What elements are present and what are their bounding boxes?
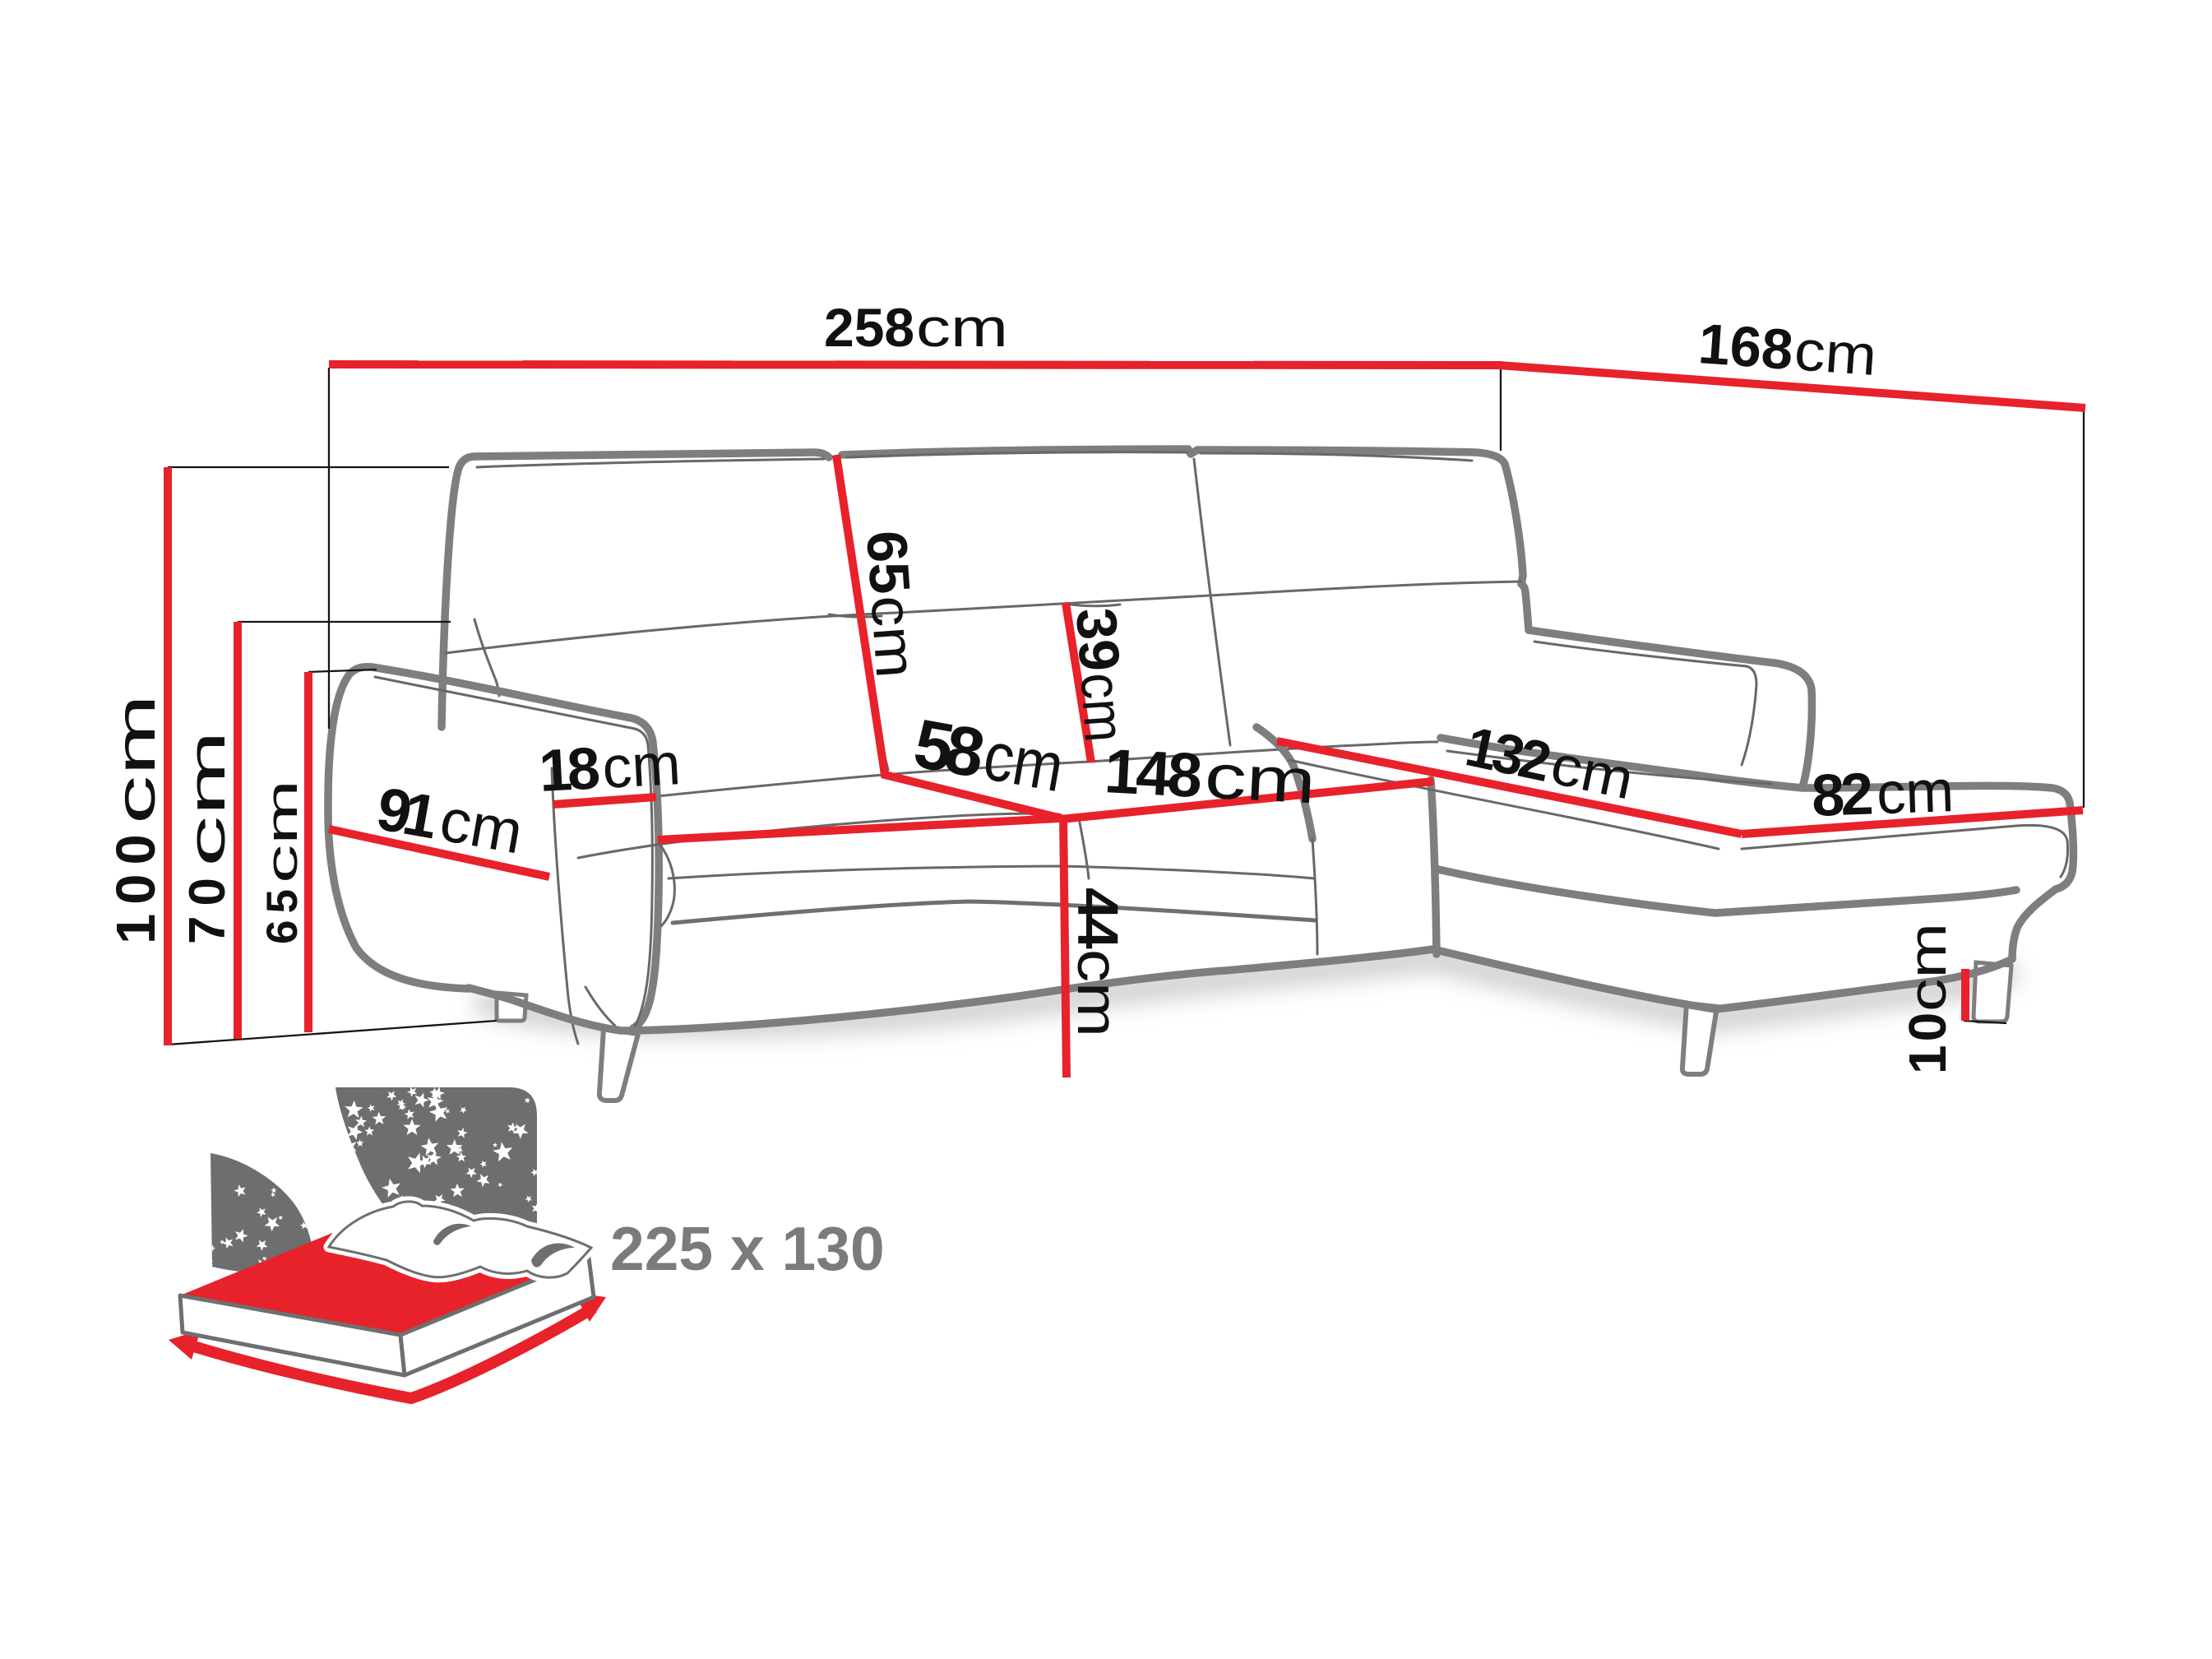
svg-text:cm: cm xyxy=(1793,318,1879,387)
svg-text:cm: cm xyxy=(1203,741,1317,817)
svg-text:cm: cm xyxy=(1069,670,1137,744)
svg-text:82: 82 xyxy=(1811,761,1873,829)
svg-text:cm: cm xyxy=(916,297,1008,358)
svg-text:39: 39 xyxy=(1064,606,1131,674)
svg-text:148: 148 xyxy=(1103,736,1202,811)
svg-text:cm: cm xyxy=(1066,949,1130,1037)
svg-text:65: 65 xyxy=(258,883,307,944)
svg-text:10: 10 xyxy=(1898,1009,1957,1074)
svg-text:cm: cm xyxy=(435,785,528,867)
svg-text:cm: cm xyxy=(979,716,1070,806)
svg-text:cm: cm xyxy=(179,730,236,867)
svg-text:44: 44 xyxy=(1066,887,1130,949)
svg-text:65: 65 xyxy=(854,529,922,596)
svg-text:258: 258 xyxy=(824,297,914,358)
svg-text:100: 100 xyxy=(105,825,167,944)
svg-text:70: 70 xyxy=(179,868,236,944)
svg-text:18: 18 xyxy=(538,735,600,804)
svg-text:168: 168 xyxy=(1696,312,1795,382)
svg-text:cm: cm xyxy=(105,694,167,824)
svg-text:cm: cm xyxy=(859,593,928,679)
svg-text:cm: cm xyxy=(1898,923,1957,1012)
svg-text:225 x 130: 225 x 130 xyxy=(610,1214,885,1283)
svg-text:cm: cm xyxy=(601,731,683,801)
svg-text:cm: cm xyxy=(1876,758,1955,827)
svg-text:cm: cm xyxy=(258,780,307,883)
